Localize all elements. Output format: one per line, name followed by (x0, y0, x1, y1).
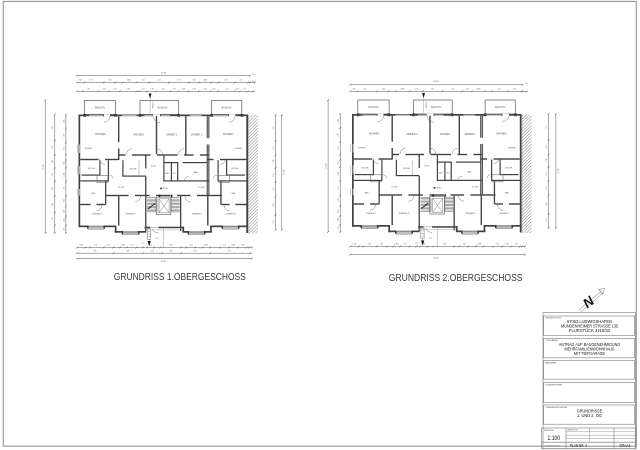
svg-text:BAD: BAD (467, 170, 472, 173)
svg-text:1,26: 1,26 (192, 89, 195, 91)
svg-text:3,85: 3,85 (546, 202, 548, 205)
svg-text:4,35: 4,35 (93, 250, 96, 252)
svg-text:1,01: 1,01 (130, 245, 133, 247)
svg-text:1,01: 1,01 (338, 209, 340, 212)
svg-text:BALKON: BALKON (369, 106, 379, 109)
svg-text:GRUNDRISS 2.OBERGESCHOSS: GRUNDRISS 2.OBERGESCHOSS (389, 273, 523, 284)
svg-text:2,00: 2,00 (212, 89, 215, 91)
svg-text:2,01: 2,01 (513, 88, 516, 90)
svg-text:5,45: 5,45 (79, 80, 82, 82)
svg-text:2,51: 2,51 (52, 173, 54, 176)
svg-text:1,26: 1,26 (546, 186, 548, 189)
svg-text:BAD: BAD (194, 171, 199, 174)
svg-text:1,26: 1,26 (141, 89, 144, 91)
svg-text:2,50: 2,50 (368, 244, 371, 246)
svg-text:3,385: 3,385 (121, 245, 125, 247)
svg-text:ZIMMER 2: ZIMMER 2 (399, 213, 410, 215)
svg-text:1,35: 1,35 (156, 238, 159, 240)
svg-text:1,26: 1,26 (546, 145, 548, 148)
svg-text:GRUNDSTÜCK:: GRUNDSTÜCK: (546, 317, 562, 320)
svg-text:AUFZUG: AUFZUG (161, 187, 169, 190)
svg-text:ZIMMER 2: ZIMMER 2 (192, 214, 203, 216)
svg-text:VORHABEN:: VORHABEN: (546, 339, 559, 342)
svg-text:2,01: 2,01 (239, 80, 242, 82)
svg-text:20,05: 20,05 (433, 257, 439, 259)
svg-text:ZIMMER 2: ZIMMER 2 (465, 213, 476, 215)
svg-text:1,135: 1,135 (504, 244, 508, 246)
svg-text:3,50: 3,50 (382, 88, 385, 90)
svg-text:ZIMMER 1: ZIMMER 1 (166, 134, 178, 136)
svg-text:12. AUGUST 1998: 12. AUGUST 1998 (545, 445, 560, 448)
svg-text:1,26: 1,26 (273, 187, 275, 190)
svg-text:2,385: 2,385 (400, 88, 404, 90)
svg-text:1,38: 1,38 (150, 89, 153, 91)
svg-text:ESSEN: ESSEN (85, 148, 93, 150)
svg-text:WOHNEN: WOHNEN (496, 133, 507, 135)
svg-text:1,26: 1,26 (189, 245, 192, 247)
svg-text:PLANFERTIGER:: PLANFERTIGER: (546, 383, 564, 386)
svg-text:2,50: 2,50 (241, 245, 244, 247)
svg-text:1,26: 1,26 (242, 89, 245, 91)
svg-text:2,51: 2,51 (273, 126, 275, 129)
svg-text:5,45: 5,45 (352, 88, 355, 90)
svg-text:3,85: 3,85 (273, 159, 275, 162)
svg-text:2,51: 2,51 (546, 172, 548, 175)
svg-text:1,75: 1,75 (173, 89, 176, 91)
svg-text:1,75: 1,75 (177, 80, 180, 82)
svg-text:FLUR: FLUR (472, 186, 478, 188)
svg-text:1,385: 1,385 (63, 172, 65, 176)
svg-text:5,38: 5,38 (126, 89, 129, 91)
svg-text:PLAN NR. 2: PLAN NR. 2 (570, 443, 587, 448)
svg-text:FLURSTÜCK 3210/33: FLURSTÜCK 3210/33 (569, 327, 610, 333)
svg-text:BAD: BAD (365, 192, 370, 195)
svg-text:3,85: 3,85 (52, 203, 54, 206)
svg-text:ZIMMER 1: ZIMMER 1 (499, 213, 510, 215)
svg-text:1,26: 1,26 (63, 134, 65, 137)
svg-text:WOHNEN: WOHNEN (133, 134, 144, 136)
svg-text:1,26: 1,26 (338, 186, 340, 189)
svg-text:KÜCHE: KÜCHE (88, 167, 96, 170)
svg-text:1,35: 1,35 (429, 238, 432, 240)
svg-text:2,51: 2,51 (273, 220, 275, 223)
svg-text:GRUNDRISS 1.OBERGESCHOSS: GRUNDRISS 1.OBERGESCHOSS (114, 272, 246, 283)
svg-text:5,38: 5,38 (182, 89, 185, 91)
svg-text:ZIMMER 2: ZIMMER 2 (465, 134, 477, 136)
svg-text:FLUR: FLUR (151, 166, 157, 168)
svg-text:1,385: 1,385 (63, 218, 65, 222)
svg-text:1,38: 1,38 (203, 89, 206, 91)
svg-text:2,00: 2,00 (161, 89, 164, 91)
svg-text:ZIMMER 1: ZIMMER 1 (92, 214, 103, 216)
svg-text:WOHNEN: WOHNEN (440, 134, 451, 136)
svg-text:BAD: BAD (231, 192, 236, 195)
svg-text:1,01: 1,01 (338, 161, 340, 164)
svg-text:BAUHERR:: BAUHERR: (546, 361, 558, 364)
svg-text:3,385: 3,385 (477, 244, 481, 246)
svg-text:1,01: 1,01 (222, 245, 225, 247)
svg-text:ESSEN: ESSEN (235, 148, 243, 150)
svg-text:2,50: 2,50 (443, 244, 446, 246)
svg-text:1,385: 1,385 (63, 119, 65, 123)
svg-text:WOHNEN: WOHNEN (369, 133, 380, 135)
svg-text:1,26: 1,26 (63, 228, 65, 231)
svg-text:3,85: 3,85 (52, 160, 54, 163)
svg-text:2,385: 2,385 (203, 80, 207, 82)
svg-text:BALKON: BALKON (495, 106, 505, 109)
svg-text:MASSSTAB:: MASSSTAB: (544, 429, 555, 432)
svg-text:1,135: 1,135 (79, 245, 83, 247)
svg-text:1,135: 1,135 (352, 244, 356, 246)
svg-text:1,01: 1,01 (63, 210, 65, 213)
svg-text:2,385: 2,385 (127, 80, 131, 82)
svg-text:ZIMMER 2: ZIMMER 2 (407, 134, 419, 136)
svg-text:5,15: 5,15 (498, 88, 501, 90)
svg-text:AUFZUG: AUFZUG (435, 186, 443, 189)
svg-text:2,25: 2,25 (63, 199, 65, 202)
svg-text:3,50: 3,50 (466, 88, 469, 90)
svg-text:BALKON: BALKON (95, 106, 105, 109)
svg-text:3,50: 3,50 (126, 250, 129, 252)
svg-text:ZIMMER 2: ZIMMER 2 (191, 134, 203, 136)
svg-text:2,00: 2,00 (102, 89, 105, 91)
svg-text:11,735: 11,735 (557, 168, 559, 173)
svg-text:KÜCHE: KÜCHE (403, 167, 411, 170)
svg-text:1,75: 1,75 (113, 89, 116, 91)
svg-text:BALKON: BALKON (431, 106, 441, 109)
svg-text:2,50: 2,50 (515, 244, 518, 246)
svg-text:1,38: 1,38 (86, 89, 89, 91)
svg-text:1,26: 1,26 (338, 226, 340, 229)
svg-text:1,26: 1,26 (380, 244, 383, 246)
svg-text:3,385: 3,385 (394, 244, 398, 246)
svg-text:KÜCHE: KÜCHE (129, 168, 137, 171)
svg-text:1,75: 1,75 (451, 88, 454, 90)
svg-text:19,45: 19,45 (161, 261, 167, 263)
svg-text:19,45: 19,45 (161, 72, 167, 74)
svg-text:2,26: 2,26 (150, 250, 153, 252)
svg-text:ESSEN: ESSEN (508, 148, 516, 150)
svg-text:1,26: 1,26 (52, 146, 54, 149)
svg-text:WOHNEN: WOHNEN (95, 134, 106, 136)
svg-text:1,75: 1,75 (89, 80, 92, 82)
svg-text:5,15: 5,15 (525, 83, 528, 85)
svg-text:2,25: 2,25 (338, 146, 340, 149)
svg-text:1,01: 1,01 (404, 244, 407, 246)
svg-text:1,31: 1,31 (142, 243, 145, 245)
svg-text:FLUR: FLUR (199, 187, 205, 189)
svg-text:DIN A1: DIN A1 (620, 443, 631, 448)
svg-text:1,75: 1,75 (363, 88, 366, 90)
svg-text:2,51: 2,51 (546, 218, 548, 221)
svg-text:5,15: 5,15 (415, 88, 418, 90)
svg-text:WOHNEN: WOHNEN (223, 134, 234, 136)
svg-text:ZIMMER 1: ZIMMER 1 (226, 214, 237, 216)
svg-text:1,135: 1,135 (148, 245, 152, 247)
svg-text:12,355: 12,355 (43, 164, 45, 170)
svg-text:4,35: 4,35 (169, 250, 172, 252)
svg-text:ZIMMER 1: ZIMMER 1 (366, 213, 377, 215)
svg-text:2,51: 2,51 (52, 217, 54, 220)
svg-text:3,85: 3,85 (273, 203, 275, 206)
svg-text:1,385: 1,385 (338, 119, 340, 123)
svg-text:11,735: 11,735 (283, 169, 285, 174)
svg-text:FLUR: FLUR (425, 165, 431, 167)
svg-text:5,15: 5,15 (224, 80, 227, 82)
svg-text:2,26: 2,26 (227, 250, 230, 252)
svg-text:1,26: 1,26 (52, 187, 54, 190)
svg-text:1,75: 1,75 (225, 89, 228, 91)
svg-text:3,50: 3,50 (193, 250, 196, 252)
svg-text:KÜCHE: KÜCHE (231, 167, 239, 170)
svg-text:1,26: 1,26 (106, 245, 109, 247)
svg-text:3,85: 3,85 (546, 158, 548, 161)
svg-text:BALKON: BALKON (158, 106, 168, 109)
svg-text:FLUR: FLUR (118, 187, 124, 189)
svg-text:MIT TIEFGARAGE: MIT TIEFGARAGE (574, 351, 605, 356)
svg-text:BALKON: BALKON (222, 106, 232, 109)
svg-text:20,05: 20,05 (433, 81, 439, 83)
svg-text:2,25: 2,25 (63, 147, 65, 150)
svg-text:3,50: 3,50 (192, 80, 195, 82)
svg-text:BAD: BAD (91, 192, 96, 195)
svg-text:3,50: 3,50 (108, 80, 111, 82)
svg-text:2,01: 2,01 (431, 88, 434, 90)
svg-text:KÜCHE: KÜCHE (505, 167, 513, 170)
svg-text:1,385: 1,385 (338, 218, 340, 222)
svg-text:2,51: 2,51 (52, 126, 54, 129)
svg-text:1. UND 2. OG: 1. UND 2. OG (577, 413, 602, 418)
svg-text:2,50: 2,50 (94, 245, 97, 247)
svg-text:ÄNDERUNG:: ÄNDERUNG: (568, 429, 579, 432)
svg-text:1,135: 1,135 (421, 244, 425, 246)
svg-text:2,51: 2,51 (273, 173, 275, 176)
svg-text:2,385: 2,385 (476, 88, 480, 90)
svg-text:KÜCHE: KÜCHE (361, 167, 369, 170)
svg-text:FLUR: FLUR (392, 186, 398, 188)
svg-text:2,50: 2,50 (169, 245, 172, 247)
svg-text:1,31: 1,31 (415, 243, 418, 245)
svg-text:1,385: 1,385 (338, 172, 340, 176)
svg-text:1,26: 1,26 (463, 244, 466, 246)
svg-text:5,38: 5,38 (235, 89, 238, 91)
svg-text:PLANBEZEICHNUNG:: PLANBEZEICHNUNG: (546, 406, 569, 409)
svg-text:1:100: 1:100 (548, 436, 561, 442)
svg-text:ESSEN: ESSEN (358, 148, 366, 150)
svg-text:1,01: 1,01 (63, 162, 65, 165)
svg-text:5,15: 5,15 (252, 74, 255, 76)
svg-text:2,01: 2,01 (157, 80, 160, 82)
svg-text:ZIMMER 2: ZIMMER 2 (125, 214, 136, 216)
svg-text:1,26: 1,26 (338, 133, 340, 136)
svg-text:12,355: 12,355 (326, 163, 328, 169)
svg-text:5,15: 5,15 (141, 80, 144, 82)
svg-text:2,51: 2,51 (546, 125, 548, 128)
svg-text:1,26: 1,26 (273, 146, 275, 149)
svg-text:BAD: BAD (505, 192, 510, 195)
svg-text:5,10: 5,10 (252, 81, 255, 83)
svg-text:3,385: 3,385 (204, 245, 208, 247)
svg-text:1,01: 1,01 (496, 244, 499, 246)
svg-text:1,135: 1,135 (231, 245, 235, 247)
svg-text:1,26: 1,26 (63, 187, 65, 190)
svg-text:2,25: 2,25 (338, 198, 340, 201)
